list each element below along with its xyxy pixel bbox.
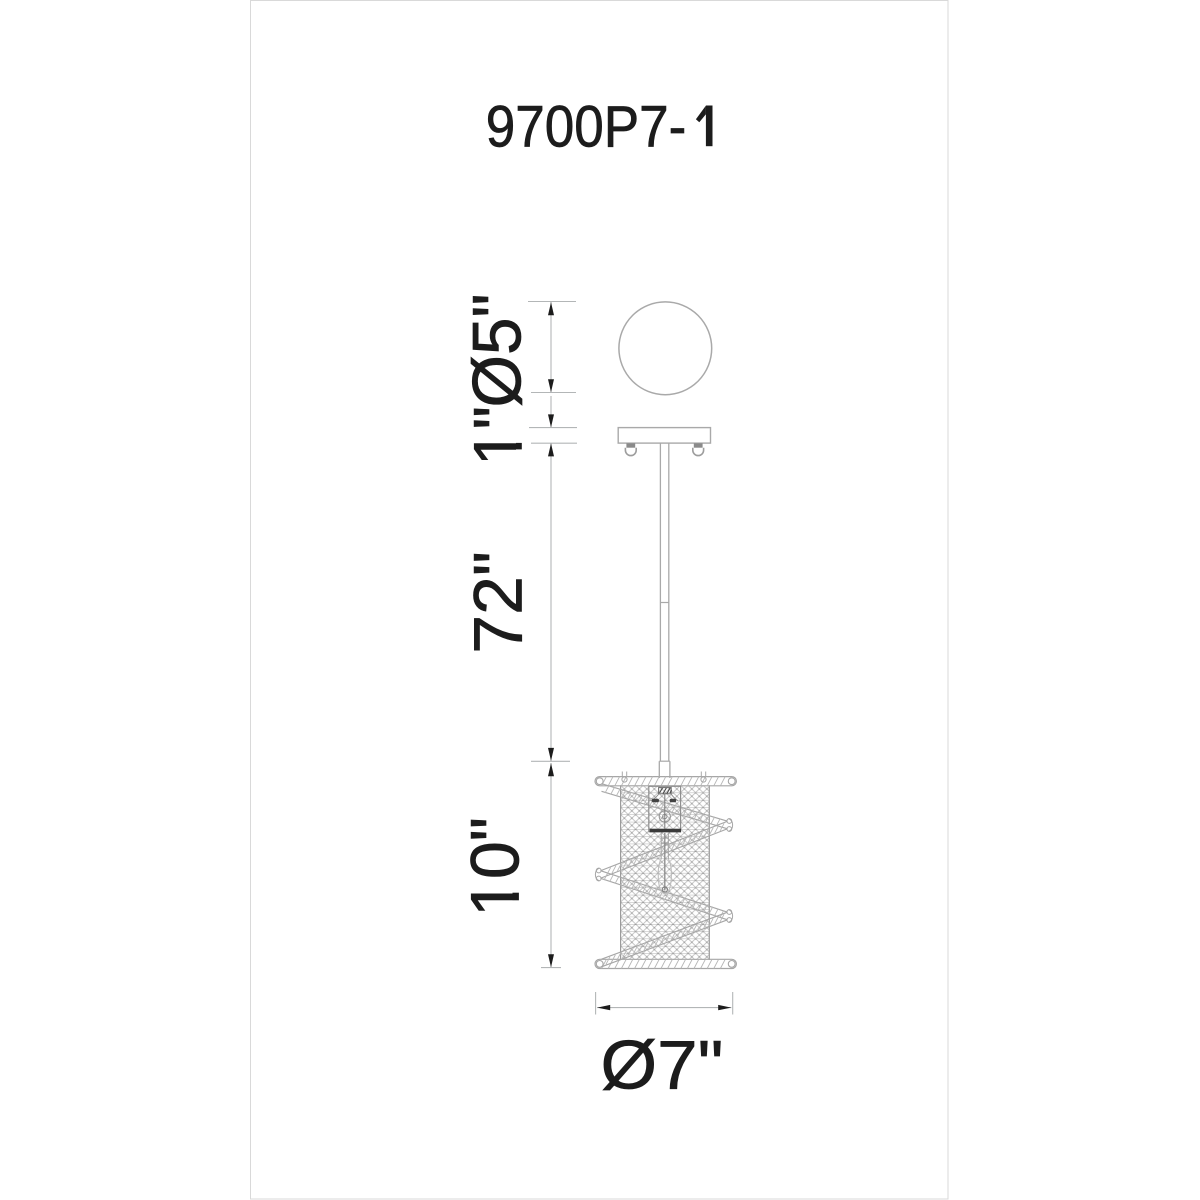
svg-text:1": 1" [460, 406, 537, 466]
svg-text:9700P7-1: 9700P7-1 [486, 94, 716, 159]
svg-text:72": 72" [460, 551, 537, 654]
svg-text:Ø7": Ø7" [601, 1027, 724, 1104]
svg-text:Ø5": Ø5" [459, 294, 536, 408]
